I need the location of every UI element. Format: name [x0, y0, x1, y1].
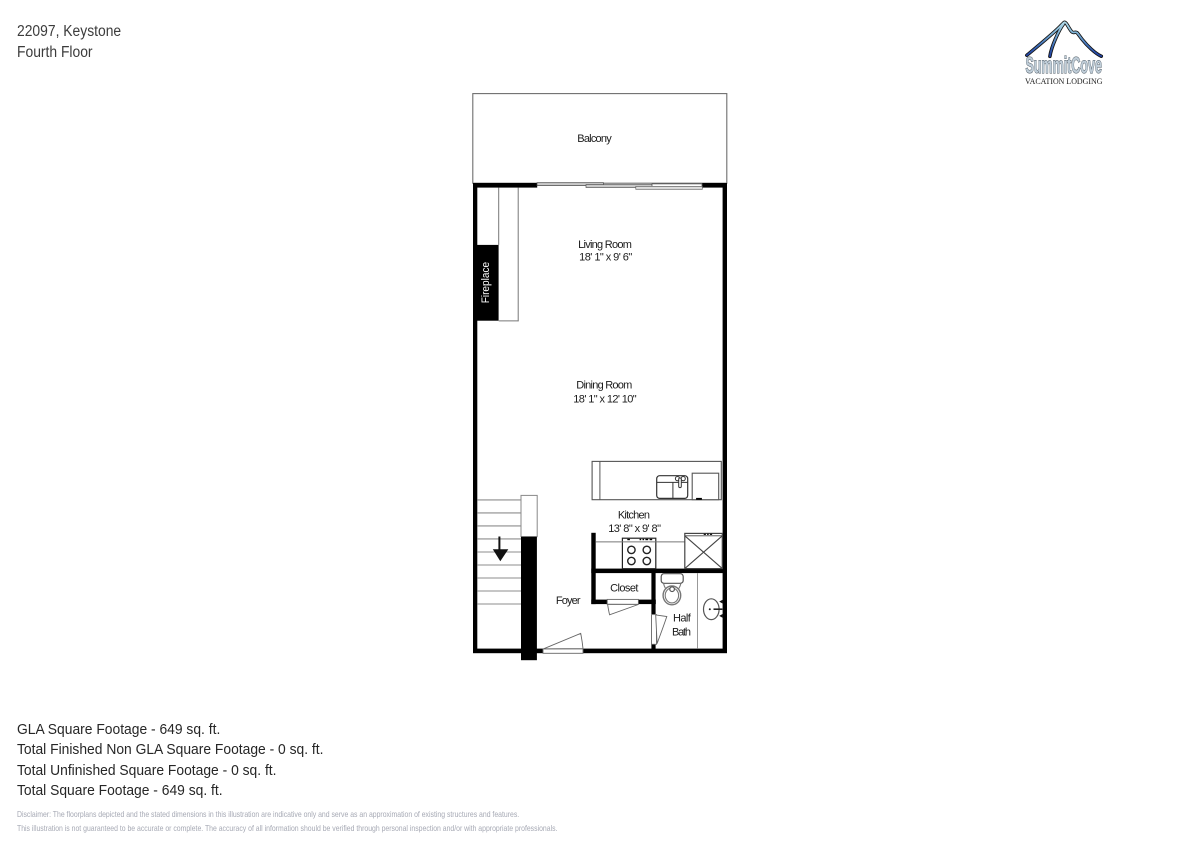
svg-text:Balcony: Balcony	[577, 133, 612, 145]
svg-text:13' 8" x 9' 8": 13' 8" x 9' 8"	[608, 523, 661, 535]
svg-text:SummitCove: SummitCove	[1025, 52, 1102, 78]
svg-text:18' 1" x 12' 10": 18' 1" x 12' 10"	[573, 394, 636, 406]
svg-text:18' 1" x 9' 6": 18' 1" x 9' 6"	[579, 252, 632, 264]
svg-text:Closet: Closet	[610, 582, 638, 594]
svg-text:Kitchen: Kitchen	[618, 510, 650, 522]
svg-text:Foyer: Foyer	[556, 595, 581, 607]
svg-text:Bath: Bath	[672, 626, 691, 638]
svg-text:Dining Room: Dining Room	[576, 379, 632, 391]
svg-text:Fireplace: Fireplace	[480, 262, 492, 303]
svg-text:Half: Half	[673, 613, 692, 625]
svg-text:VACATION LODGING: VACATION LODGING	[1025, 77, 1103, 86]
svg-text:Living Room: Living Room	[578, 239, 632, 251]
